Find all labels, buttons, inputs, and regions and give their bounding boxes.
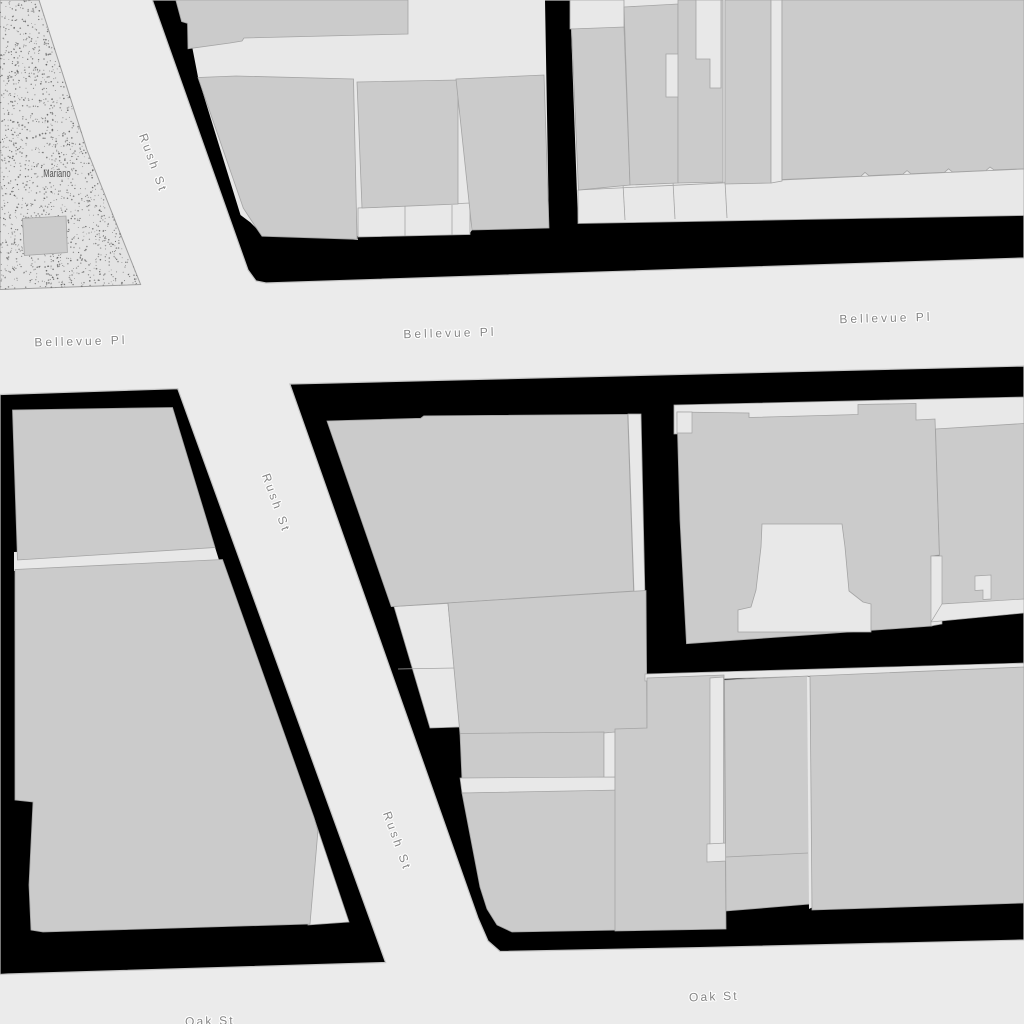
svg-text:Oak St: Oak St [689,989,739,1005]
svg-text:Bellevue Pl: Bellevue Pl [403,325,496,341]
svg-text:Bellevue Pl: Bellevue Pl [34,333,127,349]
svg-text:Mariano: Mariano [43,166,70,179]
svg-text:Oak St: Oak St [185,1013,235,1024]
svg-text:Bellevue Pl: Bellevue Pl [839,310,932,326]
